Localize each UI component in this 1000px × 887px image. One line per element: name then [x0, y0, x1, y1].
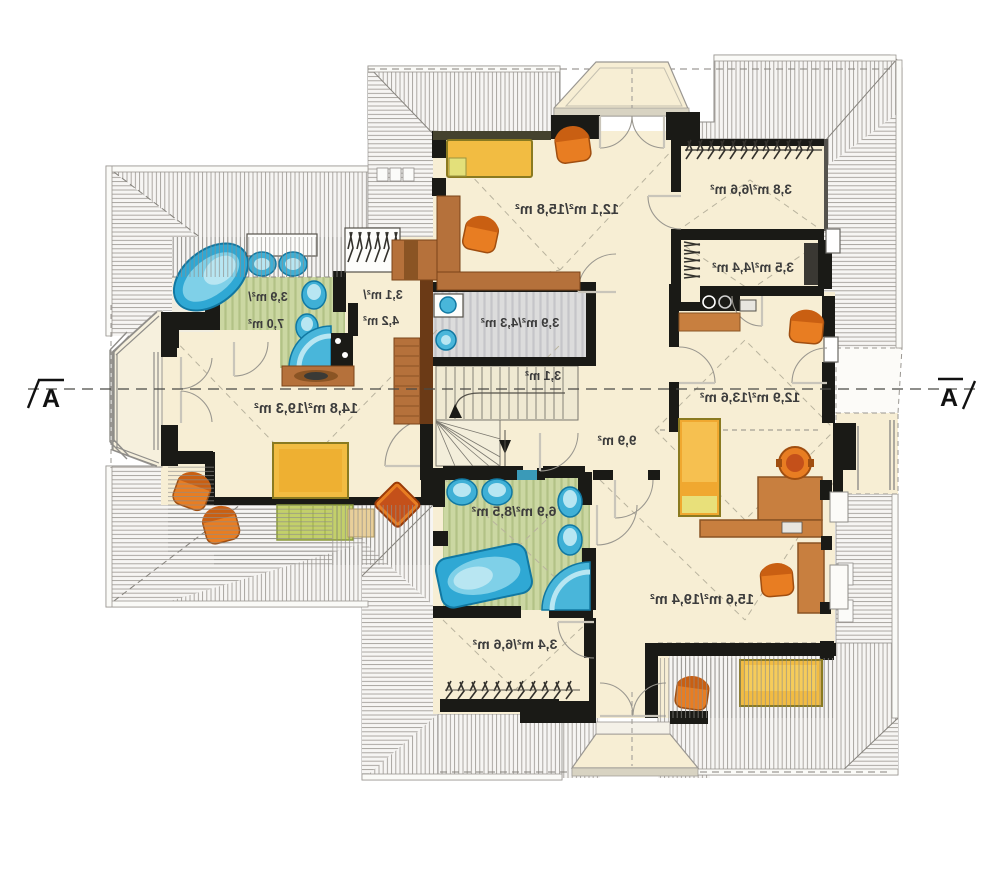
svg-text:3,4 m²/6,6 m²: 3,4 m²/6,6 m² [472, 636, 557, 652]
svg-text:3,9 m²/4,3 m²: 3,9 m²/4,3 m² [480, 315, 559, 330]
svg-text:4,2 m²: 4,2 m² [363, 314, 399, 328]
svg-text:7,0 m²: 7,0 m² [248, 317, 284, 331]
svg-text:12,9 m²/13,6 m²: 12,9 m²/13,6 m² [699, 389, 800, 405]
svg-text:3,5 m²/4,4 m²: 3,5 m²/4,4 m² [712, 260, 794, 275]
svg-text:A: A [940, 384, 958, 412]
svg-text:3,9 m²/: 3,9 m²/ [248, 290, 288, 304]
svg-text:9,9 m²: 9,9 m² [597, 433, 637, 448]
svg-text:6,9 m²/8,5 m²: 6,9 m²/8,5 m² [471, 503, 556, 519]
svg-text:15,6 m²/19,4 m²: 15,6 m²/19,4 m² [650, 592, 754, 608]
svg-text:3,1 m²: 3,1 m² [525, 369, 561, 383]
svg-text:A: A [42, 385, 60, 413]
svg-text:14,8 m²/19,3 m²: 14,8 m²/19,3 m² [254, 401, 358, 417]
svg-text:3,1 m²/: 3,1 m²/ [363, 288, 403, 302]
svg-text:12,1 m²/15,8 m²: 12,1 m²/15,8 m² [515, 202, 619, 218]
svg-text:3,8 m²/6,6 m²: 3,8 m²/6,6 m² [710, 182, 792, 197]
